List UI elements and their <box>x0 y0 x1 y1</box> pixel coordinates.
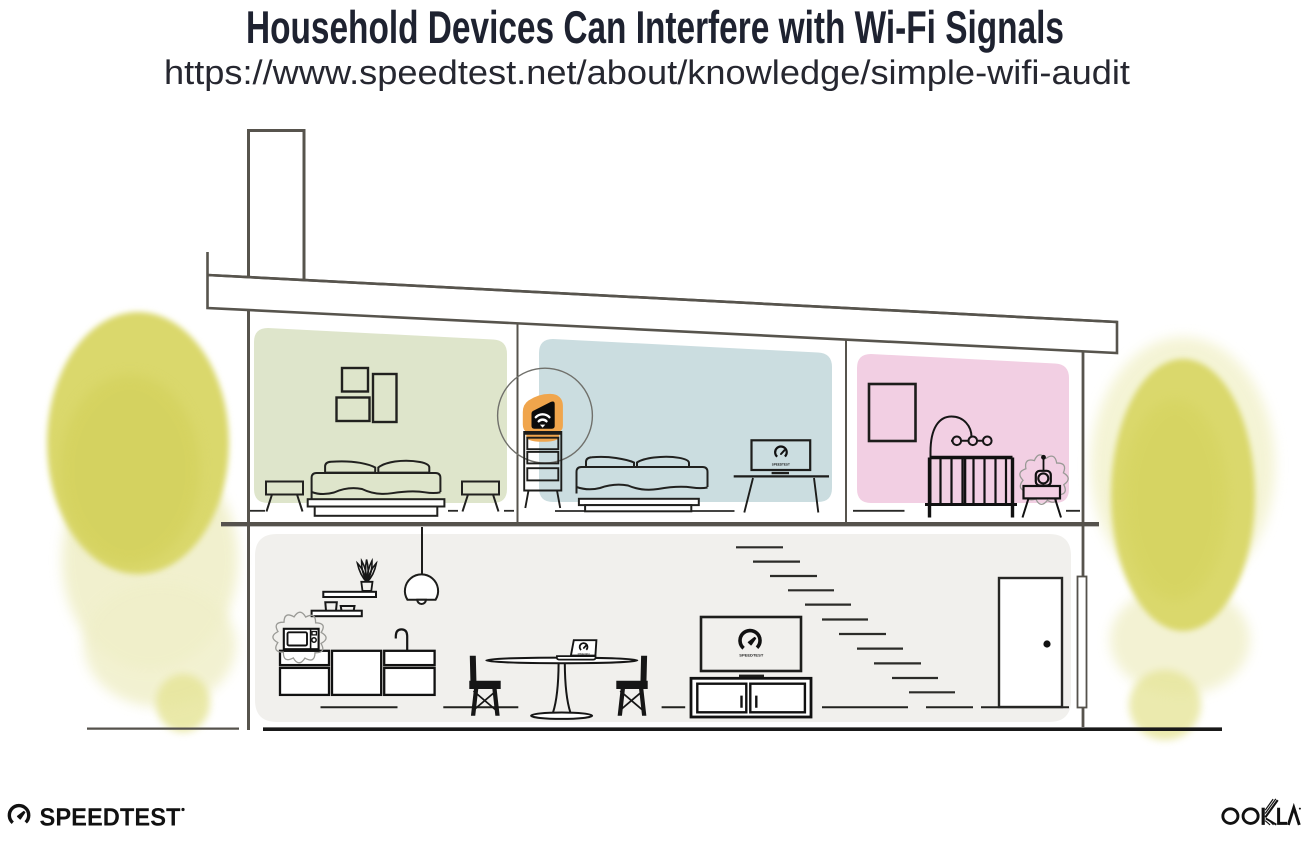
svg-text:SPEEDTEST: SPEEDTEST <box>739 654 764 658</box>
svg-text:SPEEDTEST: SPEEDTEST <box>578 652 591 655</box>
svg-text:Household Devices Can Interfer: Household Devices Can Interfere with Wi-… <box>246 1 1064 53</box>
svg-text:SPEEDTEST: SPEEDTEST <box>40 803 181 831</box>
svg-text:SPEEDTEST: SPEEDTEST <box>772 463 790 467</box>
svg-text:https://www.speedtest.net/abou: https://www.speedtest.net/about/knowledg… <box>164 54 1131 92</box>
